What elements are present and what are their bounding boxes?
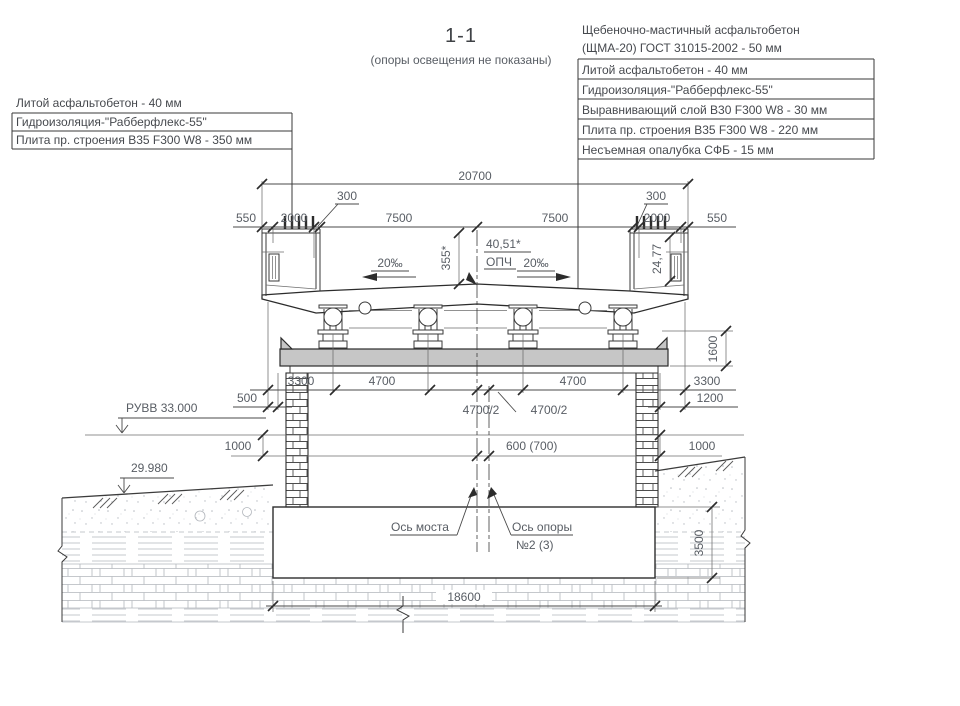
- diaphragm-hole-right: [579, 302, 591, 314]
- dim-3500: 3500: [692, 529, 706, 556]
- dim-total-width: 20700: [458, 169, 492, 183]
- left-layer-row: Гидроизоляция-"Рабберфлекс-55": [16, 115, 207, 129]
- dim-1000-left: 1000: [225, 439, 252, 453]
- road-elevation-label: 40,51*: [486, 237, 521, 251]
- dim-4700-half-right: 4700/2: [531, 403, 568, 417]
- bridge-axis-label: Ось моста: [391, 520, 449, 534]
- dim-1000-right: 1000: [689, 439, 716, 453]
- dim-300-left: 300: [337, 189, 357, 203]
- left-layer-row: Литой асфальтобетон - 40 мм: [16, 96, 182, 110]
- dim-355: 355*: [439, 245, 453, 270]
- ground-level-label: 29.980: [131, 461, 168, 475]
- pier-axis-label: Ось опоры: [512, 520, 572, 534]
- dim-2477: 24,77: [650, 244, 664, 274]
- dim-600-700: 600 (700): [506, 439, 557, 453]
- foundation: [273, 507, 655, 578]
- right-layer-row: Литой асфальтобетон - 40 мм: [582, 63, 748, 77]
- dim-1200: 1200: [697, 391, 724, 405]
- right-layer-row: Несъемная опалубка СФБ - 15 мм: [582, 143, 774, 157]
- dim-3300-left: 3300: [288, 374, 315, 388]
- left-layer-table: Литой асфальтобетон - 40 мм Гидроизоляци…: [12, 96, 292, 229]
- right-layer-row: Щебеночно-мастичный асфальтобетон: [582, 23, 800, 37]
- right-layer-row: Выравнивающий слой В30 F300 W8 - 30 мм: [582, 103, 827, 117]
- dim-4700-right: 4700: [560, 374, 587, 388]
- dim-4700-half-left: 4700/2: [463, 403, 500, 417]
- dim-3300-right: 3300: [694, 374, 721, 388]
- section-subtitle: (опоры освещения не показаны): [371, 53, 552, 67]
- dim-550-right: 550: [707, 211, 727, 225]
- girders: [318, 302, 638, 348]
- right-layer-row: (ЩМА-20) ГОСТ 31015-2002 - 50 мм: [582, 41, 782, 55]
- bridge-section-drawing: Литой асфальтобетон - 40 мм Гидроизоляци…: [0, 0, 960, 706]
- pier-columns: [286, 373, 658, 507]
- right-layer-row: Гидроизоляция-"Рабберфлекс-55": [582, 83, 773, 97]
- section-title: 1-1: [445, 25, 477, 47]
- opch-label: ОПЧ: [486, 255, 512, 269]
- right-layer-row: Плита пр. строения В35 F300 W8 - 220 мм: [582, 123, 818, 137]
- dim-500: 500: [237, 391, 257, 405]
- dim-2000-left: 2000: [281, 211, 308, 225]
- dim-550-left: 550: [236, 211, 256, 225]
- slope-left-label: 20‰: [377, 256, 402, 270]
- diaphragm-hole-left: [359, 302, 371, 314]
- left-layer-row: Плита пр. строения В35 F300 W8 - 350 мм: [16, 133, 252, 147]
- slope-right-label: 20‰: [523, 256, 548, 270]
- dim-1600: 1600: [706, 335, 720, 362]
- dim-4700-left: 4700: [369, 374, 396, 388]
- right-layer-table: Щебеночно-мастичный асфальтобетон (ЩМА-2…: [578, 23, 874, 288]
- pier-axis-number: №2 (3): [516, 538, 554, 552]
- water-level-label: РУВВ 33.000: [126, 401, 198, 415]
- dim-7500-left: 7500: [386, 211, 413, 225]
- dim-7500-right: 7500: [542, 211, 569, 225]
- drawing-canvas: Литой асфальтобетон - 40 мм Гидроизоляци…: [0, 0, 960, 706]
- dim-300-right: 300: [646, 189, 666, 203]
- dim-2000-right: 2000: [644, 211, 671, 225]
- dim-18600: 18600: [447, 590, 481, 604]
